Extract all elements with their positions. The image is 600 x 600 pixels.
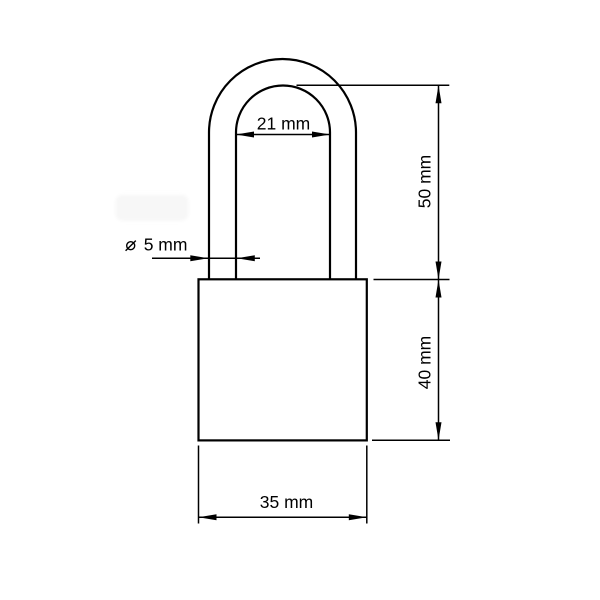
svg-text:50 mm: 50 mm (415, 155, 435, 208)
svg-text:21 mm: 21 mm (257, 114, 310, 134)
svg-text:35 mm: 35 mm (260, 492, 313, 512)
svg-text:5 mm: 5 mm (144, 235, 188, 255)
svg-text:40 mm: 40 mm (415, 336, 435, 389)
